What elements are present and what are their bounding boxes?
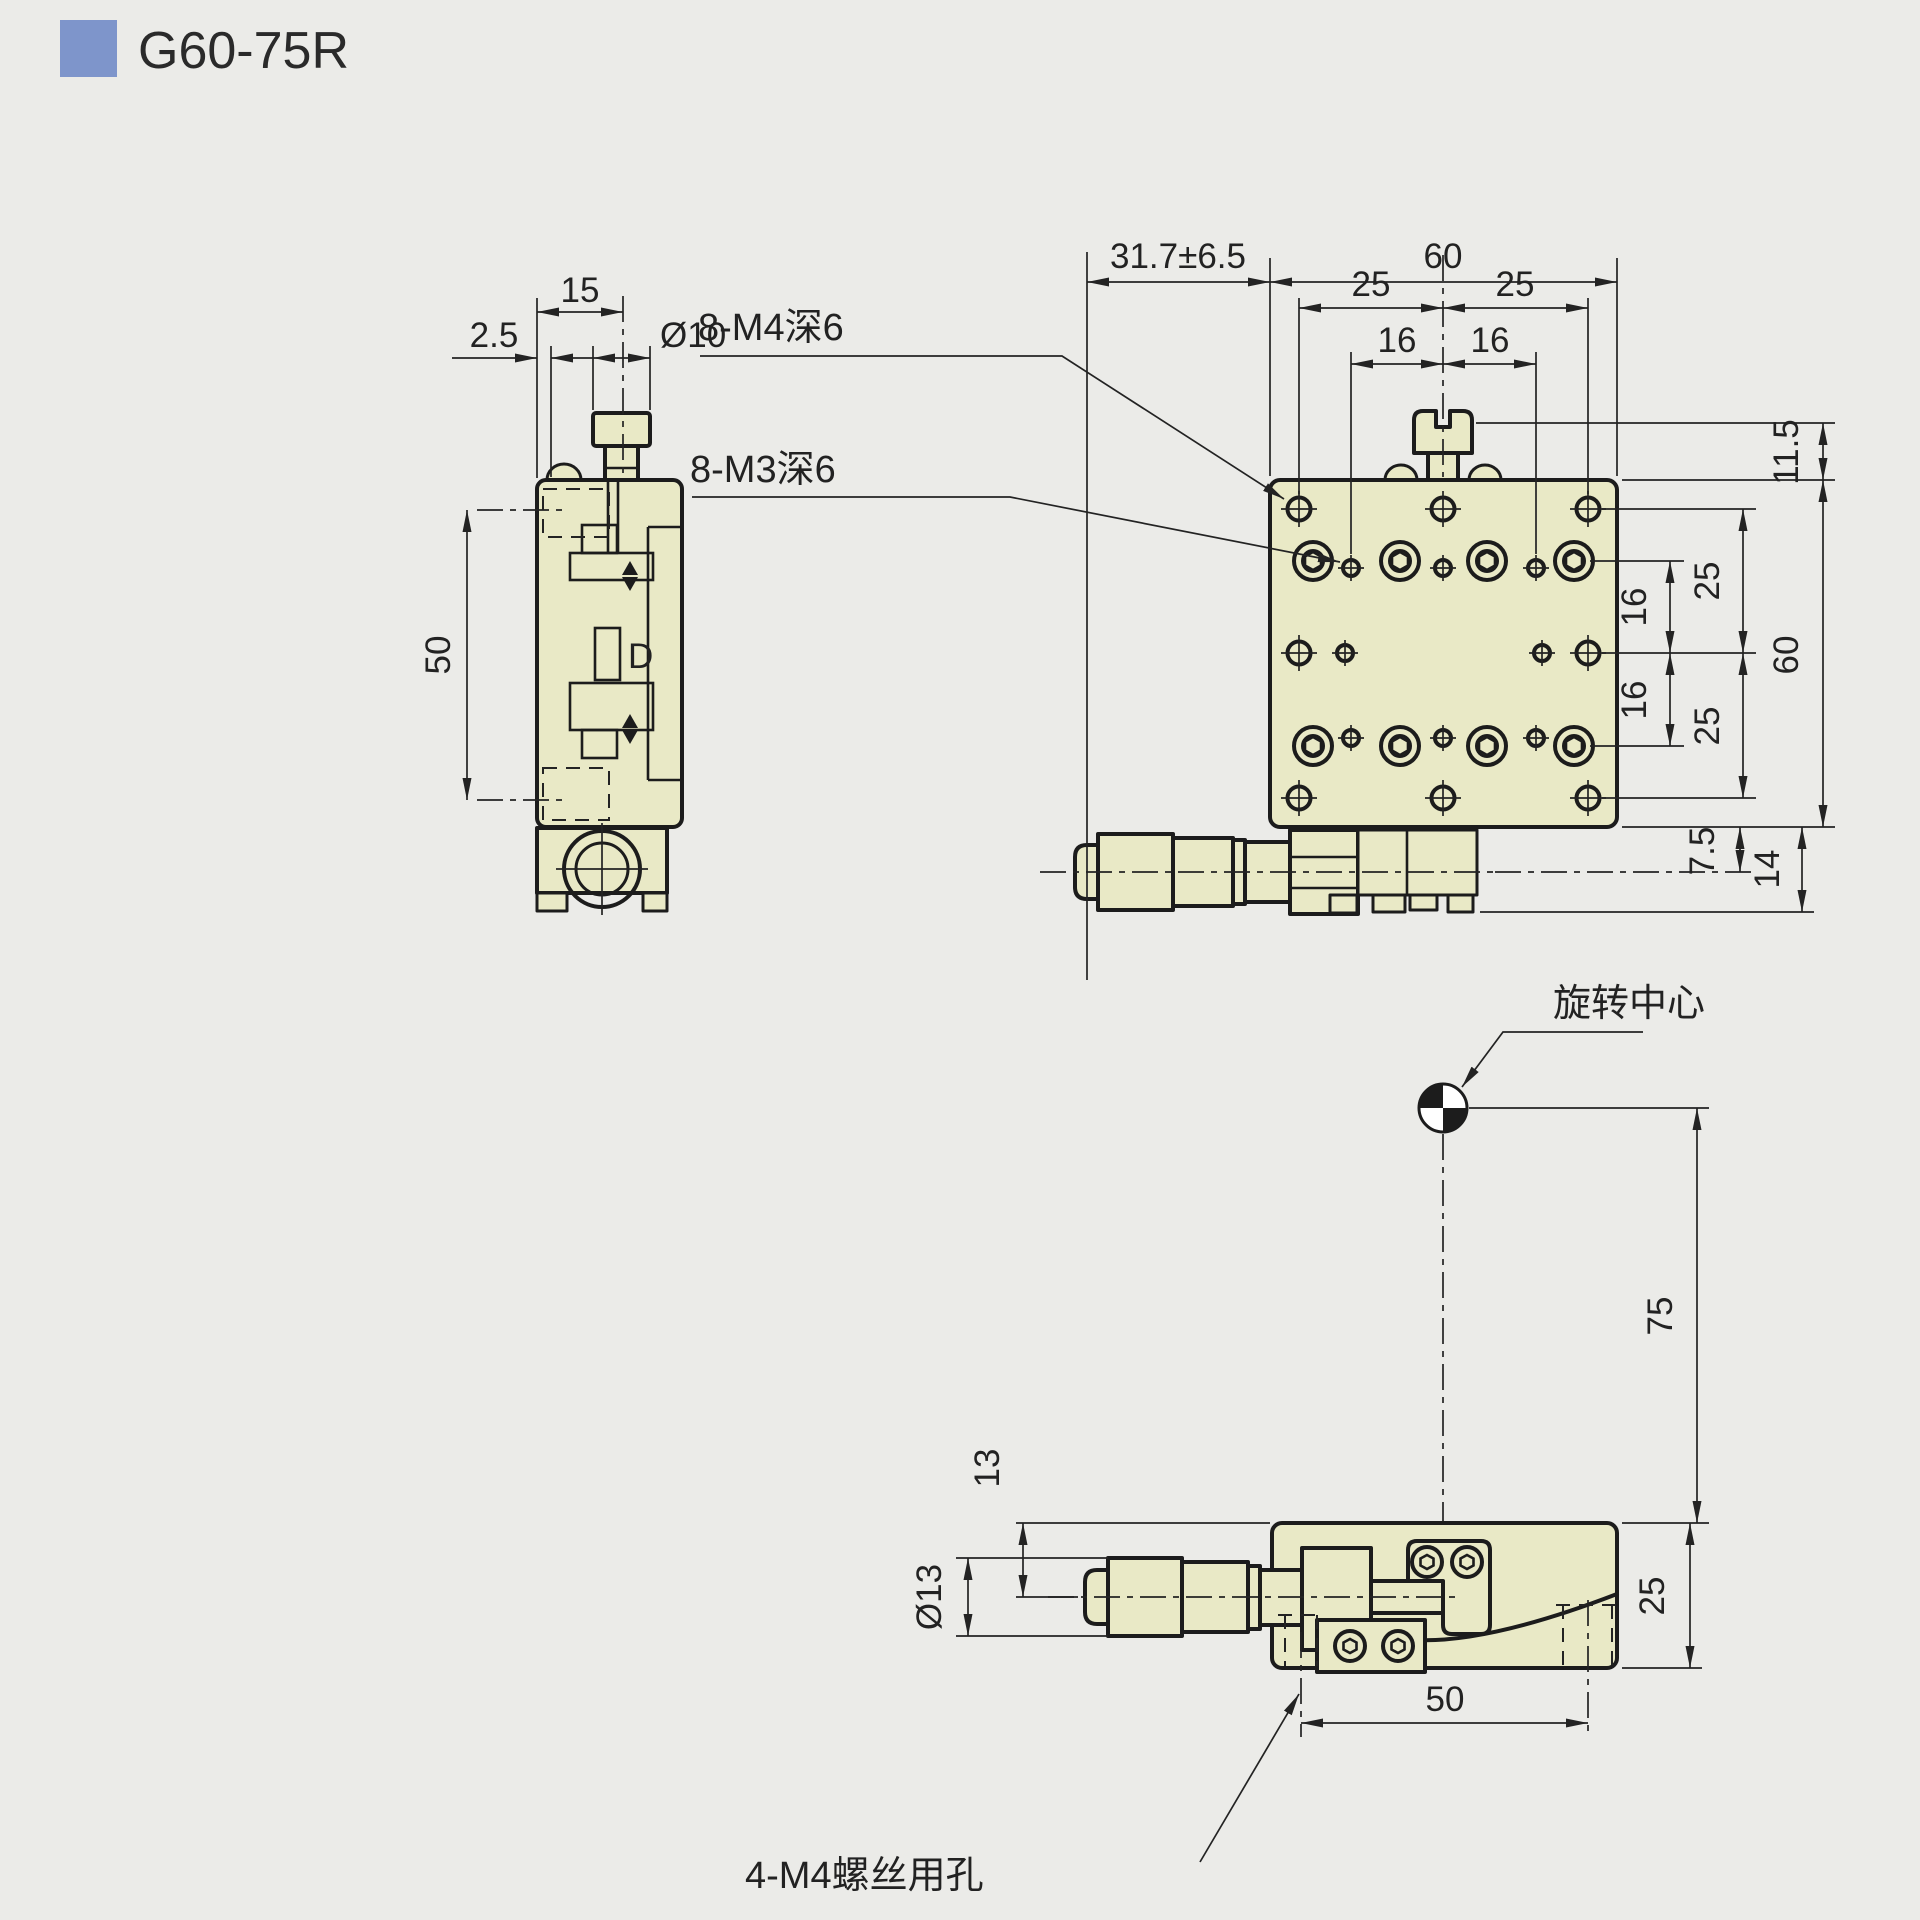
dim-row25-bottom: 25 — [1688, 707, 1727, 746]
rotation-center-symbol — [1419, 1084, 1467, 1132]
side-setscrew-dome — [547, 464, 581, 480]
top-dome-right — [1469, 465, 1501, 480]
front-view-dimensions: 13 Ø13 25 50 4-M4螺丝用孔 — [745, 1449, 1709, 1897]
dim-side-offset: 2.5 — [470, 316, 519, 355]
side-knob-shaft — [605, 445, 638, 482]
detail-mark-d: D — [628, 637, 653, 676]
rotation-center-label: 旋转中心 — [1553, 983, 1705, 1025]
dim-row16-bottom: 16 — [1615, 681, 1654, 720]
dim-axis-offset: 13 — [968, 1449, 1007, 1488]
dim-rotation-radius: 75 — [1641, 1297, 1680, 1336]
drawing-page: G60-75R D — [0, 0, 1920, 1920]
dim-knob-height: 11.5 — [1767, 419, 1806, 485]
dim-col16-right: 16 — [1471, 321, 1510, 360]
side-bracket-foot-right — [643, 893, 667, 911]
title-block: G60-75R — [60, 20, 349, 80]
top-dome-left — [1385, 465, 1417, 480]
dim-base-height: 14 — [1748, 850, 1787, 889]
top-base-bracket — [1358, 830, 1477, 895]
dim-row25-top: 25 — [1688, 562, 1727, 601]
label-m4-clearance: 4-M4螺丝用孔 — [745, 1855, 984, 1897]
top-view-labels: 8-M4深6 8-M3深6 — [690, 307, 1340, 562]
dim-travel-range: 31.7±6.5 — [1110, 237, 1246, 276]
dim-col25-right: 25 — [1496, 265, 1535, 304]
dim-micrometer-dia: Ø13 — [910, 1564, 949, 1630]
dim-side-width: 15 — [561, 271, 600, 310]
side-knob-head — [593, 413, 650, 446]
dim-front-height: 25 — [1633, 1577, 1672, 1616]
side-bracket-foot-left — [537, 893, 567, 911]
top-plate — [1270, 480, 1617, 827]
dim-col16-left: 16 — [1378, 321, 1417, 360]
dim-row16-top: 16 — [1615, 588, 1654, 627]
dim-base-offset: 7.5 — [1683, 827, 1722, 876]
side-micrometer-bracket — [537, 823, 667, 915]
top-view: 8-M4深6 8-M3深6 31.7±6.5 60 25 25 — [690, 237, 1835, 980]
dim-hole-span: 50 — [1426, 1680, 1465, 1719]
front-bottom-pocket — [1317, 1620, 1425, 1672]
title-marker — [60, 20, 117, 77]
front-view: 13 Ø13 25 50 4-M4螺丝用孔 — [745, 1449, 1709, 1897]
label-m4-holes: 8-M4深6 — [698, 307, 844, 349]
page-title: G60-75R — [138, 22, 349, 80]
dim-col25-left: 25 — [1352, 265, 1391, 304]
dim-top-height: 60 — [1767, 636, 1806, 675]
rotation-center: 旋转中心 75 — [1419, 983, 1709, 1558]
side-view: D 15 2.5 — [419, 271, 726, 915]
label-m3-holes: 8-M3深6 — [690, 449, 836, 491]
dim-side-travel: 50 — [419, 636, 458, 675]
top-micrometer — [1040, 830, 1495, 914]
technical-drawing: G60-75R D — [0, 0, 1920, 1920]
